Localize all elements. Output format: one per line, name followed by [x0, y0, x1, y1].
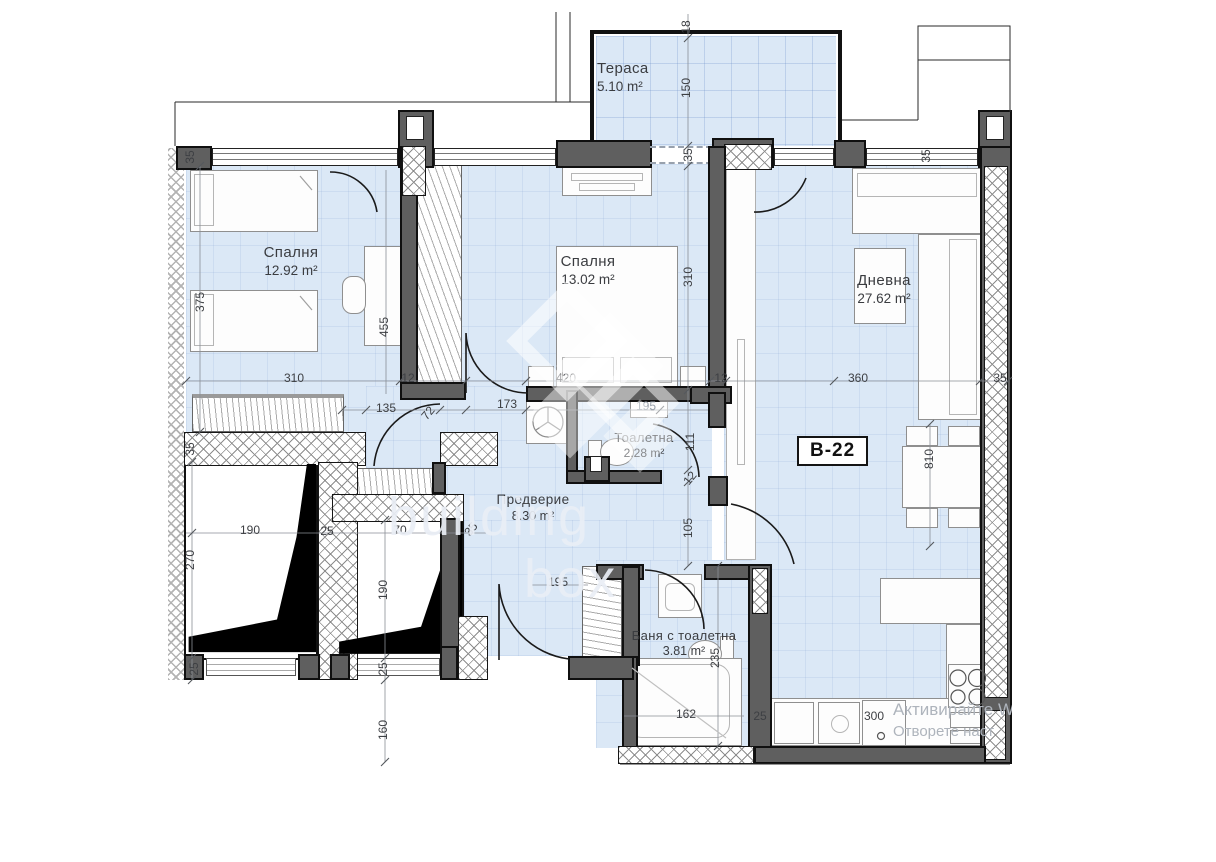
wall-bathroom-top-right: [704, 564, 752, 580]
room-name: Тераса: [597, 60, 649, 79]
room-area: 8.30 m²: [497, 509, 570, 525]
dining-chair-3: [906, 508, 938, 528]
room-name: Тоалетна: [614, 430, 673, 446]
wall-right-insulation: [984, 166, 1008, 698]
wall-entrance-column: [458, 616, 488, 680]
wall-terrace-door: [556, 140, 652, 168]
dishwasher: [774, 702, 814, 744]
room-area: 2.28 m²: [614, 446, 673, 461]
wall-corner-top-left: [176, 146, 212, 170]
dining-chair-4: [948, 508, 980, 528]
dining-table: [902, 446, 982, 508]
bed-single-1: [190, 170, 318, 232]
washing-machine-kitchen: [818, 702, 860, 744]
window-living-left: [774, 148, 834, 166]
bed-double-pillow-2: [620, 357, 672, 383]
room-label-toilet: Тоалетна 2.28 m²: [614, 430, 673, 461]
room-area: 27.62 m²: [857, 291, 911, 308]
dresser-drawer: [571, 173, 643, 181]
tv-cabinet: [726, 166, 756, 560]
desk: [364, 246, 402, 346]
kitchen-peninsula: [880, 578, 984, 624]
room-area: 3.81 m²: [632, 644, 737, 660]
wall-bedroom-divider-insulation: [402, 146, 426, 196]
wall-bedroom-left-bottom-b: [440, 432, 498, 466]
wall-foot-2: [298, 654, 320, 680]
bed-single-1-pillow: [194, 174, 214, 226]
wall-right-insulation-low: [984, 710, 1006, 760]
wall-toilet-duct-notch: [590, 456, 602, 472]
bathtub-basin: [628, 664, 730, 738]
room-name: Спалня: [561, 253, 616, 272]
sofa-side: [918, 234, 982, 420]
room-name: Баня с тоалетна: [632, 628, 737, 644]
sofa-top: [852, 168, 982, 234]
room-name: Спалня: [264, 244, 319, 263]
room-label-bedroom-middle: Спалня 13.02 m²: [561, 253, 616, 289]
wall-foot-1: [184, 654, 204, 680]
room-area: 5.10 m²: [597, 79, 649, 96]
room-label-hallway: Предверие 8.30 m²: [497, 492, 570, 525]
room-area: 12.92 m²: [264, 263, 319, 280]
room-area: 13.02 m²: [561, 272, 616, 289]
pillar-top-2-insulation: [724, 144, 772, 170]
wardrobe-hallway: [582, 566, 622, 662]
room-label-bathroom: Баня с тоалетна 3.81 m²: [632, 628, 737, 660]
washing-machine-icon: [831, 715, 849, 733]
wall-entrance-right: [568, 656, 634, 680]
wardrobe-bedroom-left-bottom: [192, 394, 344, 432]
bathroom-sink: [658, 574, 702, 618]
desk-chair: [342, 276, 366, 314]
dining-chair-2: [948, 426, 980, 446]
dining-chair-1: [906, 426, 938, 446]
kitchen-sink: [862, 700, 906, 746]
floor-plan: Тераса 5.10 m² Спалня 12.92 m² Спалня 13…: [0, 0, 1216, 862]
tv-icon: [737, 339, 745, 465]
wall-shaft-2-corner: [432, 462, 446, 494]
sofa-top-cushion: [857, 173, 977, 197]
wall-bedroom-left-bottom-a: [184, 432, 366, 466]
dresser-drawer-2: [579, 183, 635, 191]
room-name: Дневна: [857, 272, 911, 291]
wall-toilet-bottom: [566, 470, 662, 484]
pillar-top-1-flue: [406, 116, 424, 140]
room-label-living: Дневна 27.62 m²: [857, 272, 911, 308]
wall-bathroom-bottom: [618, 746, 754, 764]
window-bedroom-middle: [434, 148, 556, 166]
bathroom-sink-basin: [665, 583, 695, 611]
bed-single-2-pillow: [194, 294, 214, 346]
window-living-right: [866, 148, 978, 166]
wall-left-insulation: [168, 148, 184, 680]
wall-toilet-right-upper: [708, 392, 726, 428]
window-bedroom-left: [212, 148, 398, 166]
bed-double-pillow-1: [562, 357, 614, 383]
dresser: [562, 166, 652, 196]
bathtub: [622, 658, 742, 746]
chimney-top-right-flue: [986, 116, 1004, 140]
wall-entrance-left: [440, 646, 458, 680]
pillar-top-3: [834, 140, 866, 168]
sofa-side-cushion: [949, 239, 977, 415]
exterior-railing-2: [352, 658, 440, 676]
kitchen-appliance-1: [950, 712, 984, 728]
exterior-railing-1: [206, 658, 296, 676]
wall-bathroom-right-duct: [752, 568, 768, 614]
wall-bedroom-divider-foot: [400, 382, 466, 400]
wall-hallway-left: [440, 518, 460, 648]
wall-foot-3: [330, 654, 350, 680]
wardrobe-bedroom-middle: [416, 164, 462, 386]
terrace-door-opening: [650, 146, 712, 164]
washing-machine-toilet: [526, 396, 570, 444]
dimension-label: 160: [377, 720, 389, 740]
wall-bedroom-middle-right: [708, 146, 726, 392]
room-name: Предверие: [497, 492, 570, 509]
unit-number-badge: B-22: [797, 436, 868, 466]
room-label-terrace: Тераса 5.10 m²: [597, 60, 649, 96]
room-label-bedroom-left: Спалня 12.92 m²: [264, 244, 319, 280]
wall-kitchen-bottom: [754, 746, 986, 764]
bed-single-2: [190, 290, 318, 352]
kitchen-appliance-2: [950, 730, 984, 744]
wall-hall-living-upper: [708, 476, 728, 506]
